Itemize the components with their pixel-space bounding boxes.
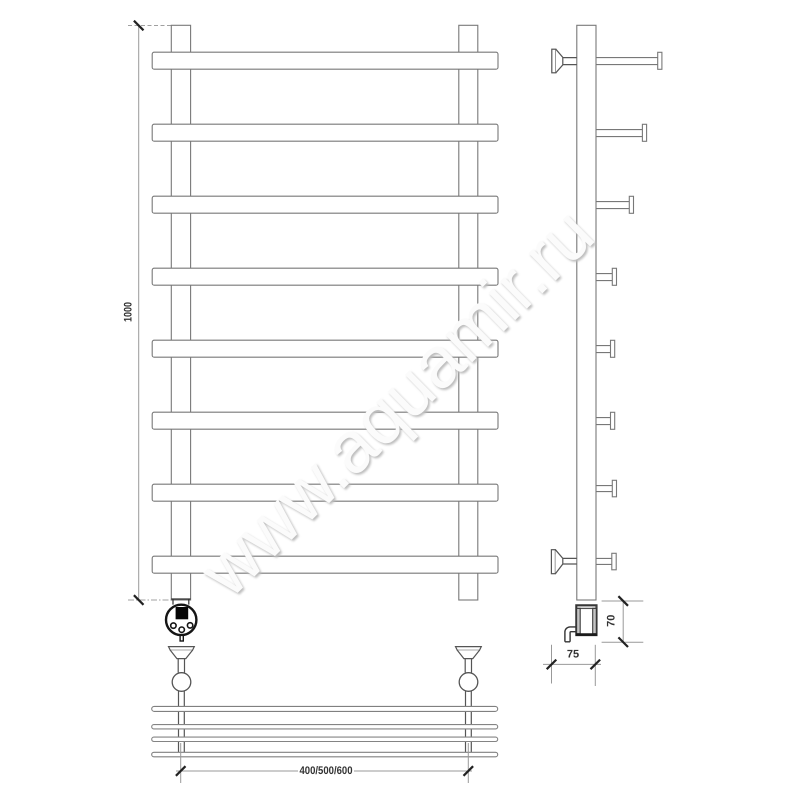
- svg-text:70: 70: [606, 615, 618, 627]
- svg-text:75: 75: [567, 649, 579, 661]
- svg-text:400/500/600: 400/500/600: [300, 765, 353, 777]
- svg-text:1000: 1000: [123, 302, 135, 322]
